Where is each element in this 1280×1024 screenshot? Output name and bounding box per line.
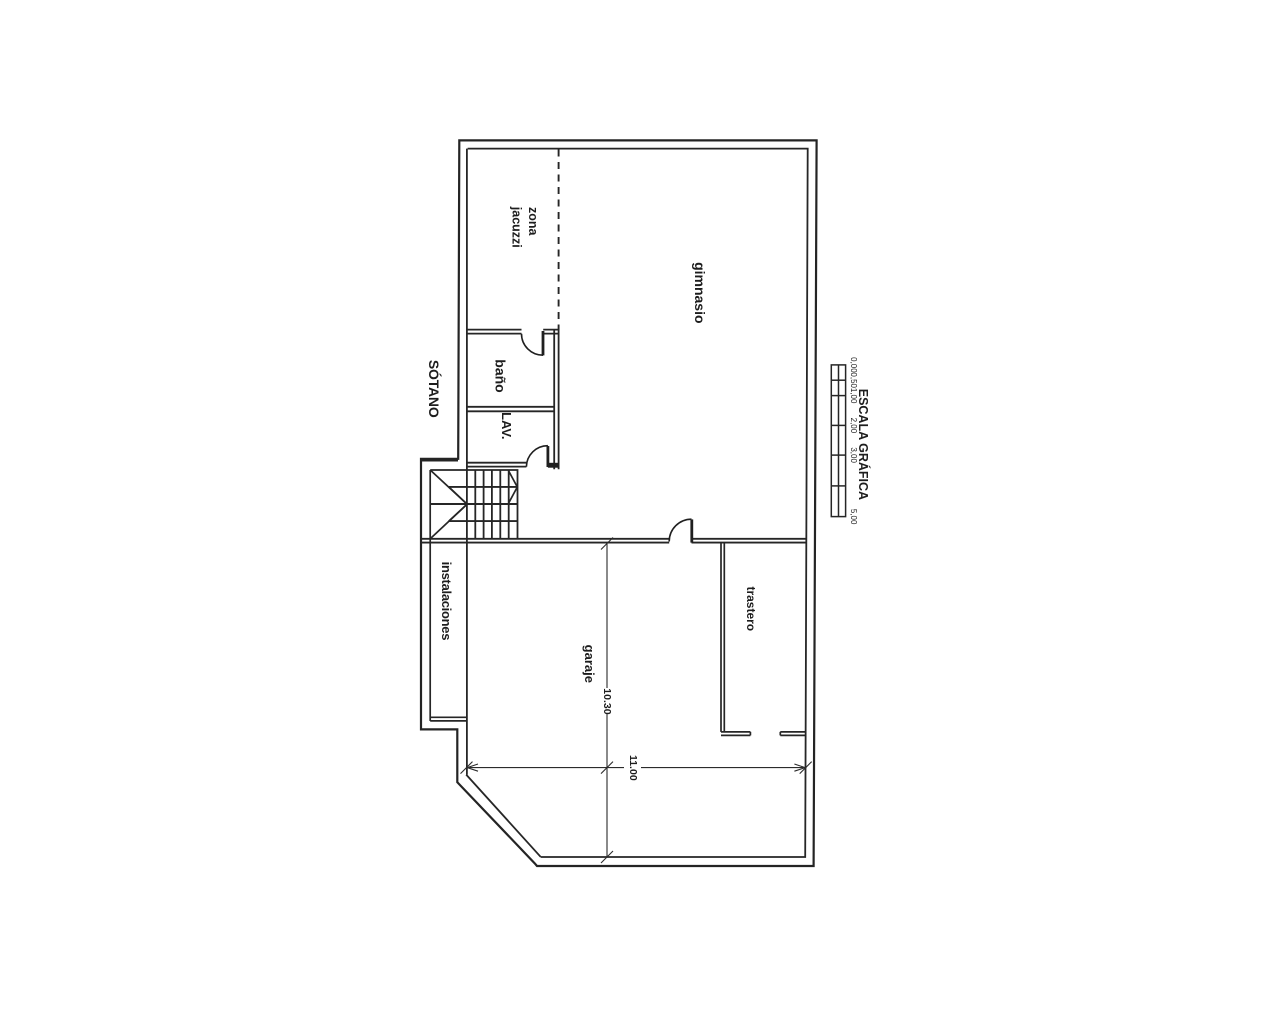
svg-text:garaje: garaje <box>582 645 597 683</box>
svg-text:LAV.: LAV. <box>499 412 514 439</box>
svg-text:trastero: trastero <box>744 586 758 631</box>
svg-text:zona: zona <box>526 207 540 237</box>
svg-text:jacuzzi: jacuzzi <box>509 206 523 248</box>
svg-text:5,00: 5,00 <box>849 509 858 525</box>
svg-text:11.00: 11.00 <box>627 755 639 781</box>
svg-text:ESCALA GRÁFICA: ESCALA GRÁFICA <box>856 389 871 500</box>
svg-text:10.30: 10.30 <box>601 688 613 714</box>
svg-text:instalaciones: instalaciones <box>439 562 454 641</box>
svg-text:gimnasio: gimnasio <box>692 262 708 323</box>
svg-text:baño: baño <box>493 359 509 392</box>
svg-text:0,50: 0,50 <box>849 372 858 388</box>
svg-text:SÓTANO: SÓTANO <box>426 360 443 418</box>
svg-text:0,00: 0,00 <box>849 357 858 373</box>
